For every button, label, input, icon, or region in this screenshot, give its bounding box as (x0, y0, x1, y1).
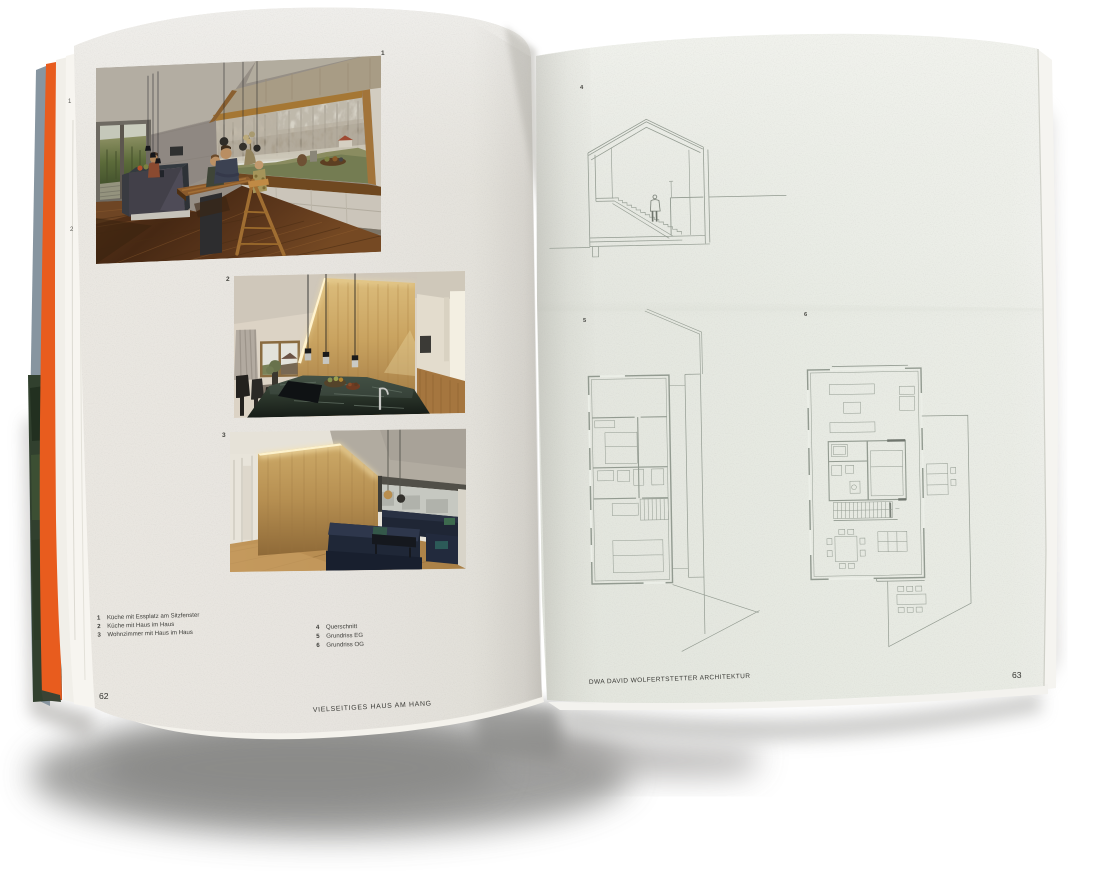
svg-text:Querschnitt: Querschnitt (326, 623, 358, 631)
svg-text:Grundriss EG: Grundriss EG (326, 632, 363, 640)
svg-text:Grundriss OG: Grundriss OG (326, 641, 364, 649)
svg-text:63: 63 (1012, 670, 1022, 680)
svg-text:3: 3 (222, 432, 226, 439)
svg-text:2: 2 (226, 276, 230, 283)
svg-text:62: 62 (99, 691, 109, 701)
svg-text:1: 1 (381, 50, 385, 57)
